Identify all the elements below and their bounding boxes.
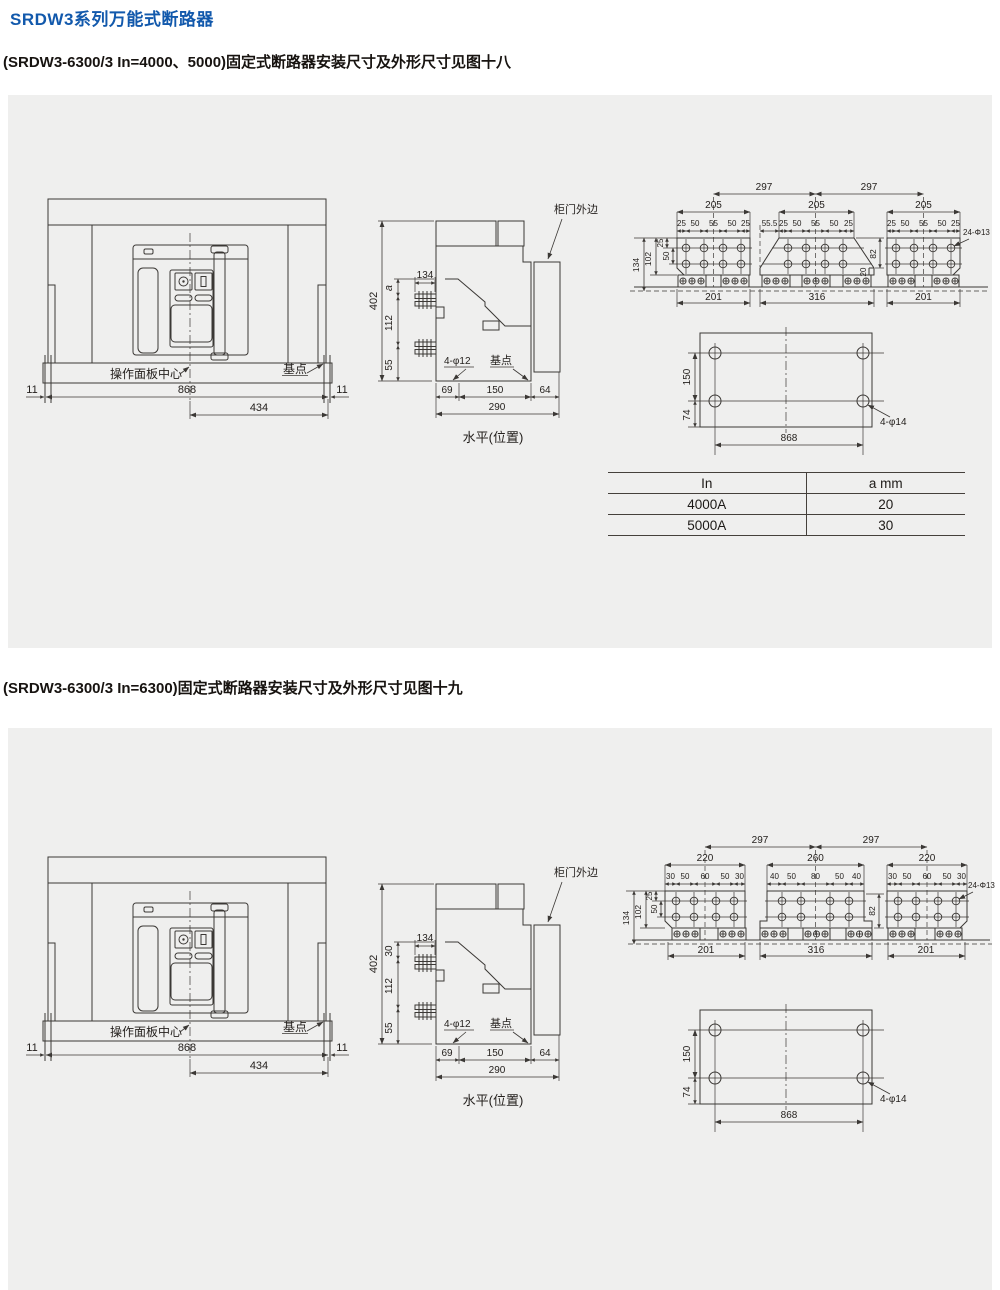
mounting-holes-label: 4-φ14 [880,417,907,428]
dim-134: 134 [417,933,434,944]
spacing-label: 50 [728,219,737,228]
figure-19-panel: 操作面板中心 基点 868 11 11 434 柜门外边 [8,728,992,1290]
dim-25: 25 [656,238,665,247]
spacing-label: 30 [666,872,675,881]
dim-316: 316 [809,292,826,303]
dim-402: 402 [368,292,380,310]
dim-64: 64 [539,385,551,396]
terminal-detail-fig18: 297 297 205 205 205 25 50 55 50 25 55.5 … [622,181,994,316]
side-holes-label: 4-φ12 [444,1019,471,1030]
spacing-label: 60 [923,872,932,881]
spacing-label: 25 [887,219,896,228]
dim-50: 50 [650,904,659,913]
dim-69: 69 [441,1048,453,1059]
base-point-label: 基点 [283,362,307,376]
block3-width: 205 [915,200,932,211]
close-button [195,931,212,948]
pitch-left: 297 [752,835,769,846]
block2-width: 205 [808,200,825,211]
side-holes-label: 4-φ12 [444,356,471,367]
dim-868: 868 [781,433,798,444]
spec-a-5000: 30 [806,515,965,536]
table-row: 4000A 20 [608,494,965,515]
dim-201-right: 201 [918,945,935,956]
breaker-side-view: 柜门外边 402 30 112 55 134 4-φ12 基点 69 150 6… [368,862,613,1134]
dim-134: 134 [631,258,641,272]
page-title: SRDW3系列万能式断路器 [10,5,214,30]
breaker-face-plate [133,245,248,360]
dim-150: 150 [487,385,504,396]
dim-868: 868 [178,1042,196,1054]
busbar-blocks [675,225,962,275]
spacing-label: 30 [957,872,966,881]
cabinet-door-edge [534,925,560,1035]
spacing-label: 30 [888,872,897,881]
bolt-strips [672,928,962,940]
dim-102: 102 [643,252,653,266]
spacing-label: 25 [779,219,788,228]
spacing-label: 50 [938,219,947,228]
dim-112: 112 [384,978,395,994]
spacing-label: 50 [787,872,796,881]
dim-201-left: 201 [698,945,715,956]
spacing-label: 80 [811,872,820,881]
dim-150: 150 [487,1048,504,1059]
table-row: 5000A 30 [608,515,965,536]
figure-18-panel: 操作面板中心 基点 868 11 11 434 柜门外边 [8,95,992,648]
spacing-label: 50 [901,219,910,228]
spacing-label: 55.5 [762,219,778,228]
spacing-label: 50 [793,219,802,228]
dim-11-left: 11 [26,384,37,396]
figure-19-heading: (SRDW3-6300/3 In=6300)固定式断路器安装尺寸及外形尺寸见图十… [3,677,463,698]
spacing-label: 50 [691,219,700,228]
spec-table: In a mm 4000A 20 5000A 30 [608,472,965,536]
dim-290: 290 [489,1065,506,1076]
dim-868: 868 [178,384,196,396]
mounting-hole-pattern: 150 74 868 4-φ14 [660,325,980,475]
dim-134: 134 [621,911,631,925]
spec-col-in: In [608,473,806,494]
pitch-left: 297 [756,182,773,193]
block1-width: 220 [697,853,714,864]
dim-134: 134 [417,270,434,281]
block2-width: 260 [807,853,824,864]
spec-in-4000: 4000A [608,494,806,515]
dim-102: 102 [633,905,643,919]
spacing-label: 50 [830,219,839,228]
spacing-label: 50 [835,872,844,881]
dim-55: 55 [384,359,395,371]
bolt-strips [678,275,959,287]
base-point-label: 基点 [283,1020,307,1034]
busbar-blocks [663,891,969,928]
spacing-label: 50 [681,872,690,881]
block3-width: 220 [919,853,936,864]
close-button [195,273,212,290]
dim-25: 25 [645,891,654,900]
panel-center-label: 操作面板中心 [110,366,182,381]
spacing-label: 55 [709,219,718,228]
spec-col-a: a mm [806,473,965,494]
spacing-label: 25 [951,219,960,228]
charging-handle [214,910,225,1013]
spec-a-4000: 20 [806,494,965,515]
spacing-label: 40 [852,872,861,881]
horizontal-position-caption: 水平(位置) [463,1093,524,1108]
spacing-label: 55 [811,219,820,228]
spacing-label: 50 [943,872,952,881]
dim-434: 434 [250,1060,268,1072]
breaker-front-view: 操作面板中心 基点 868 11 11 434 [20,843,365,1098]
dim-201-right: 201 [915,292,932,303]
dim-82: 82 [867,906,877,916]
dim-290: 290 [489,402,506,413]
dim-434: 434 [250,402,268,414]
breaker-front-view: 操作面板中心 基点 868 11 11 434 [20,185,365,440]
dim-55: 55 [384,1022,395,1034]
side-base-point-label: 基点 [490,354,512,367]
dim-201-left: 201 [705,292,722,303]
dim-402: 402 [368,955,380,973]
dim-11-right: 11 [336,1042,347,1054]
dim-150: 150 [682,368,693,385]
dim-20: 20 [859,267,868,276]
cabinet-door-label: 柜门外边 [554,865,598,879]
dim-64: 64 [539,1048,551,1059]
block1-width: 205 [705,200,722,211]
spacing-label: 50 [721,872,730,881]
horizontal-position-caption: 水平(位置) [463,430,524,445]
pitch-right: 297 [861,182,878,193]
terminal-holes-label: 24-Φ13 [963,228,990,237]
dim-a: a [383,285,395,291]
dim-a: 30 [384,945,395,957]
terminal-detail-fig19: 297 297 220 260 220 30 50 60 50 30 40 50… [622,834,994,969]
dim-112: 112 [384,315,395,331]
charging-handle [214,252,225,355]
spacing-label: 25 [741,219,750,228]
spacing-label: 25 [677,219,686,228]
spacing-label: 40 [770,872,779,881]
spacing-label: 55 [919,219,928,228]
dim-11-right: 11 [336,384,347,396]
dim-74: 74 [682,409,693,421]
panel-center-label: 操作面板中心 [110,1024,182,1039]
dim-69: 69 [441,385,453,396]
spacing-label: 50 [903,872,912,881]
mounting-holes-label: 4-φ14 [880,1094,907,1105]
dim-11-left: 11 [26,1042,37,1054]
breaker-face-plate [133,903,248,1018]
dim-50: 50 [662,251,671,260]
breaker-side-view: 柜门外边 402 a 112 55 134 4-φ12 基点 69 150 64… [368,199,613,471]
figure-18-heading: (SRDW3-6300/3 In=4000、5000)固定式断路器安装尺寸及外形… [3,51,511,72]
breaker-side-outline [415,884,560,1044]
breaker-side-outline [415,221,560,381]
dim-74: 74 [682,1086,693,1098]
pitch-right: 297 [863,835,880,846]
spacing-label: 60 [701,872,710,881]
cabinet-door-label: 柜门外边 [554,202,598,216]
side-base-point-label: 基点 [490,1017,512,1030]
spec-in-5000: 5000A [608,515,806,536]
spacing-label: 30 [735,872,744,881]
dim-82: 82 [868,249,878,259]
dim-150: 150 [682,1045,693,1062]
dim-868: 868 [781,1110,798,1121]
mounting-hole-pattern: 150 74 868 4-φ14 [660,1002,980,1152]
terminal-holes-label: 24-Φ13 [968,881,995,890]
dim-316: 316 [808,945,825,956]
spec-header-row: In a mm [608,473,965,494]
cabinet-door-edge [534,262,560,372]
spacing-label: 25 [844,219,853,228]
